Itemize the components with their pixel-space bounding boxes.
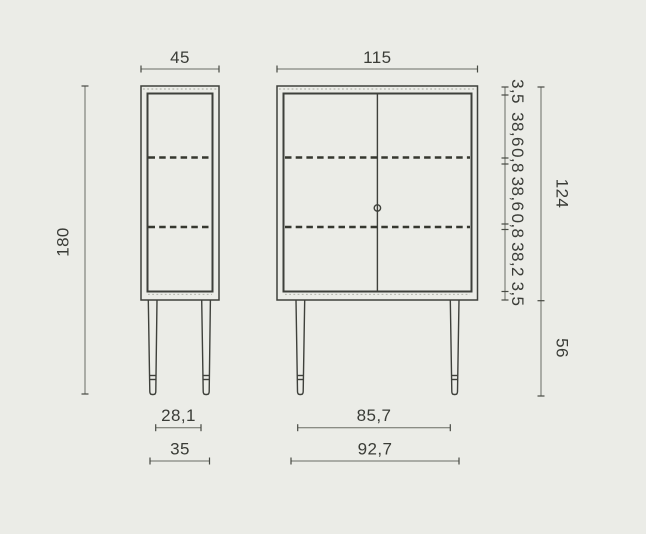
dim-vertical-chain: 3,5 38,6 0,8 38,6 0,8 38,2 3,5 bbox=[502, 79, 528, 306]
dim-front-width-label: 115 bbox=[363, 48, 391, 67]
dim-front-feet-inner-label: 85,7 bbox=[357, 406, 392, 425]
dim-side-feet-inner: 28,1 bbox=[156, 406, 201, 431]
technical-drawing-canvas: 45 115 180 3,5 38,6 0,8 38,6 0,8 38,2 3,… bbox=[0, 0, 646, 534]
dim-side-feet-outer-label: 35 bbox=[170, 440, 190, 459]
dim-segment-label: 38,6 bbox=[508, 112, 527, 147]
dim-overall-height-label: 180 bbox=[53, 227, 72, 257]
dim-front-feet-outer-label: 92,7 bbox=[358, 440, 393, 459]
dim-segment-label: 0,8 bbox=[508, 214, 527, 239]
dim-segment-label: 0,8 bbox=[508, 148, 527, 173]
dim-segment-label: 38,6 bbox=[508, 177, 527, 212]
dim-side-width-label: 45 bbox=[170, 48, 190, 67]
dim-segment-label: 3,5 bbox=[508, 79, 527, 104]
dim-leg-height-label: 56 bbox=[553, 338, 572, 358]
dim-segment-label: 3,5 bbox=[508, 282, 527, 307]
dim-segment-label: 38,2 bbox=[508, 242, 527, 277]
dim-carcass-height-label: 124 bbox=[553, 179, 572, 209]
drawing-background bbox=[0, 0, 646, 534]
dim-side-feet-inner-label: 28,1 bbox=[161, 406, 196, 425]
